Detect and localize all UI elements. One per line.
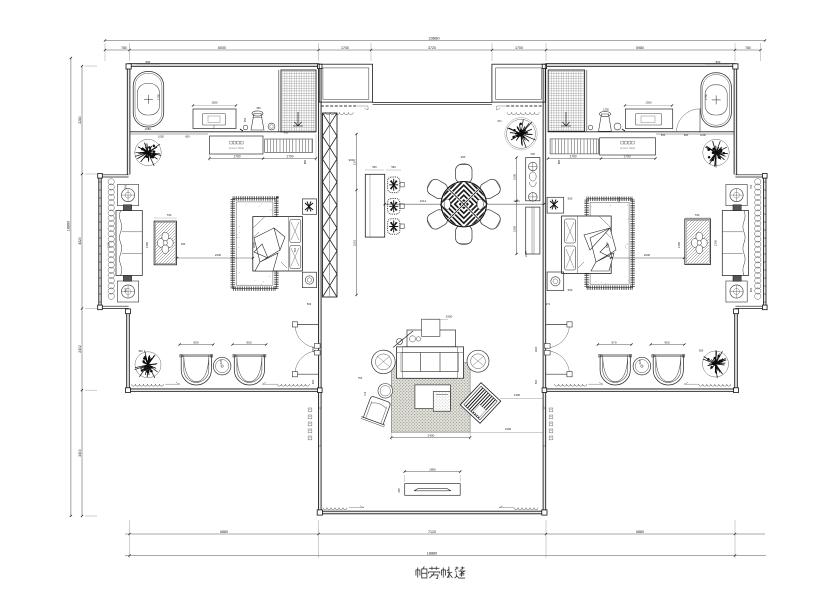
svg-text:1000: 1000 [311, 346, 315, 352]
svg-text:23680: 23680 [428, 35, 440, 40]
svg-text:325: 325 [219, 359, 223, 364]
svg-text:3400: 3400 [78, 449, 82, 457]
svg-text:2430: 2430 [215, 253, 222, 257]
svg-text:800: 800 [684, 133, 689, 137]
svg-text:5880: 5880 [636, 530, 644, 534]
svg-text:2100: 2100 [714, 239, 718, 246]
svg-text:1300: 1300 [645, 101, 652, 105]
svg-text:18860: 18860 [67, 221, 71, 232]
svg-text:1700: 1700 [341, 46, 349, 50]
svg-text:1050: 1050 [158, 135, 164, 139]
svg-text:1500: 1500 [512, 226, 516, 232]
svg-text:1014: 1014 [420, 199, 427, 203]
svg-text:1000: 1000 [700, 133, 706, 137]
svg-text:970: 970 [611, 340, 616, 344]
svg-text:600: 600 [661, 133, 666, 137]
svg-text:5880: 5880 [220, 530, 228, 534]
svg-text:1250: 1250 [603, 108, 609, 112]
svg-text:880: 880 [557, 159, 561, 164]
svg-text:365: 365 [699, 349, 704, 353]
svg-text:500: 500 [307, 302, 312, 306]
svg-text:1370: 1370 [352, 158, 356, 165]
svg-text:1750: 1750 [157, 93, 161, 100]
svg-text:1700: 1700 [515, 46, 523, 50]
svg-text:600: 600 [185, 135, 190, 139]
svg-text:1700: 1700 [286, 154, 293, 158]
svg-text:5980: 5980 [636, 46, 644, 50]
svg-text:550: 550 [372, 165, 377, 169]
svg-text:800: 800 [716, 60, 721, 64]
svg-text:780: 780 [745, 46, 751, 50]
svg-text:600: 600 [124, 184, 128, 189]
svg-text:500: 500 [568, 288, 573, 292]
svg-text:Accent Table: Accent Table [229, 146, 245, 150]
svg-text:700: 700 [167, 213, 172, 217]
svg-text:590: 590 [391, 165, 396, 169]
svg-text:500: 500 [293, 247, 297, 252]
svg-text:1700: 1700 [623, 154, 630, 158]
svg-text:1358: 1358 [677, 242, 681, 248]
svg-text:500: 500 [534, 379, 538, 384]
svg-text:350: 350 [397, 488, 401, 493]
svg-text:450: 450 [284, 131, 289, 135]
svg-text:1800: 1800 [605, 242, 609, 248]
svg-text:1500: 1500 [446, 315, 453, 319]
svg-text:450: 450 [256, 106, 261, 110]
svg-text:Accent Table: Accent Table [620, 146, 636, 150]
svg-text:600: 600 [124, 287, 128, 292]
svg-text:2000: 2000 [617, 196, 621, 202]
svg-text:1000: 1000 [534, 346, 538, 352]
svg-text:7120: 7120 [428, 530, 436, 534]
svg-text:371: 371 [497, 119, 502, 123]
svg-text:1680: 1680 [145, 127, 152, 131]
svg-text:2402: 2402 [78, 345, 82, 353]
svg-text:500: 500 [531, 152, 536, 156]
svg-text:1700: 1700 [233, 154, 240, 158]
svg-text:800: 800 [145, 60, 150, 64]
svg-text:390: 390 [181, 242, 186, 246]
svg-text:1800: 1800 [429, 467, 436, 471]
svg-text:2430: 2430 [644, 253, 651, 257]
svg-text:4320: 4320 [78, 237, 82, 245]
svg-text:700: 700 [695, 213, 700, 217]
svg-text:2190: 2190 [505, 427, 512, 431]
svg-text:780: 780 [121, 46, 127, 50]
svg-text:500: 500 [311, 379, 315, 384]
svg-text:1800: 1800 [252, 241, 256, 248]
svg-text:950: 950 [664, 340, 669, 344]
svg-text:750: 750 [749, 184, 753, 189]
svg-text:600: 600 [749, 287, 753, 292]
svg-text:350: 350 [243, 117, 247, 122]
svg-text:500: 500 [568, 197, 573, 201]
svg-text:2280: 2280 [78, 116, 82, 124]
svg-text:18880: 18880 [427, 551, 438, 555]
svg-text:450: 450 [461, 155, 466, 159]
svg-text:1500: 1500 [512, 174, 516, 180]
svg-text:950: 950 [193, 340, 198, 344]
svg-text:1700: 1700 [569, 154, 576, 158]
svg-text:950: 950 [246, 340, 251, 344]
svg-text:2201: 2201 [352, 239, 356, 246]
svg-text:360: 360 [138, 349, 143, 353]
svg-text:880: 880 [303, 159, 307, 164]
svg-text:2100: 2100 [107, 241, 111, 248]
svg-text:1500: 1500 [211, 101, 218, 105]
svg-text:3720: 3720 [428, 46, 436, 50]
svg-text:6000: 6000 [218, 46, 226, 50]
svg-text:754: 754 [358, 376, 363, 380]
svg-text:1390: 1390 [514, 393, 521, 397]
svg-text:1358: 1358 [145, 242, 149, 248]
svg-text:325: 325 [638, 359, 642, 364]
svg-text:2179: 2179 [524, 251, 528, 257]
svg-text:714: 714 [363, 391, 367, 396]
svg-text:1750: 1750 [704, 93, 708, 100]
svg-text:2400: 2400 [428, 433, 435, 437]
svg-text:271: 271 [546, 302, 551, 306]
